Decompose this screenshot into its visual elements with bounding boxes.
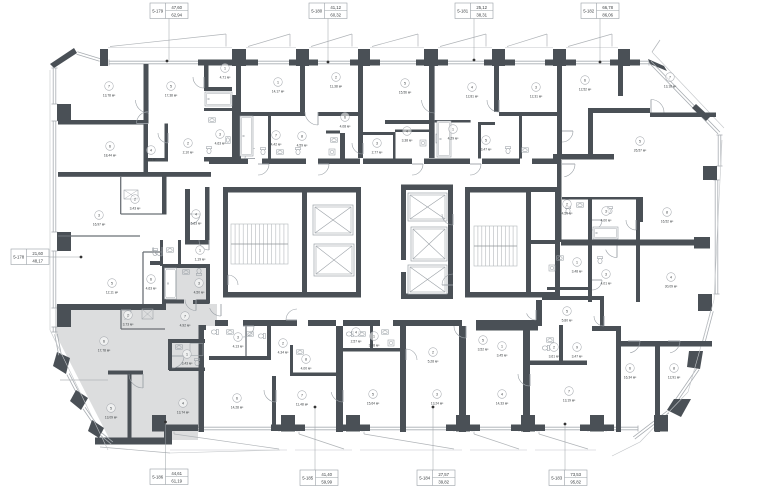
svg-text:5,80 м²: 5,80 м² (562, 319, 574, 323)
svg-text:13,09 м²: 13,09 м² (105, 416, 118, 420)
svg-text:5-183: 5-183 (551, 476, 563, 481)
svg-text:2: 2 (134, 197, 136, 201)
svg-text:4: 4 (406, 129, 408, 133)
svg-text:25,12: 25,12 (476, 5, 487, 10)
svg-text:3,43 м²: 3,43 м² (182, 362, 194, 366)
svg-text:3,43 м²: 3,43 м² (130, 207, 142, 211)
svg-text:14,28 м²: 14,28 м² (231, 406, 244, 410)
svg-text:5-178: 5-178 (13, 255, 25, 260)
svg-text:2,57 м²: 2,57 м² (351, 340, 363, 344)
svg-text:7: 7 (275, 133, 277, 137)
svg-text:11,38 м²: 11,38 м² (330, 85, 343, 89)
svg-text:3: 3 (376, 141, 378, 145)
svg-text:3: 3 (98, 213, 100, 217)
svg-text:7: 7 (108, 84, 110, 88)
svg-text:6: 6 (103, 339, 105, 343)
svg-text:62,94: 62,94 (171, 13, 182, 18)
svg-text:2: 2 (566, 202, 568, 206)
svg-text:7: 7 (184, 314, 186, 318)
svg-text:3,47 м²: 3,47 м² (572, 355, 584, 359)
svg-text:17,38 м²: 17,38 м² (165, 94, 178, 98)
svg-text:5: 5 (482, 338, 484, 342)
svg-text:5-185: 5-185 (302, 476, 314, 481)
svg-text:5-180: 5-180 (311, 9, 323, 14)
svg-text:7: 7 (568, 389, 570, 393)
svg-text:3,38 м²: 3,38 м² (402, 139, 414, 143)
svg-text:1: 1 (452, 127, 454, 131)
svg-text:11,48 м²: 11,48 м² (296, 403, 309, 407)
svg-text:13,18 м²: 13,18 м² (664, 85, 677, 89)
svg-text:6: 6 (236, 396, 238, 400)
svg-text:5: 5 (170, 84, 172, 88)
svg-text:1: 1 (501, 344, 503, 348)
svg-text:13,19 м²: 13,19 м² (563, 399, 576, 403)
svg-text:39,82: 39,82 (438, 480, 449, 485)
svg-text:8: 8 (666, 210, 668, 214)
svg-text:4: 4 (150, 148, 152, 152)
svg-text:5: 5 (372, 392, 374, 396)
svg-text:3,73 м²: 3,73 м² (123, 323, 135, 327)
svg-text:14,33 м²: 14,33 м² (496, 402, 509, 406)
svg-text:1: 1 (199, 248, 201, 252)
svg-text:5-182: 5-182 (583, 9, 595, 14)
svg-text:3,52 м²: 3,52 м² (478, 348, 490, 352)
svg-text:15,56 м²: 15,56 м² (399, 91, 412, 95)
svg-text:5,28 м²: 5,28 м² (428, 360, 440, 364)
svg-text:1: 1 (186, 352, 188, 356)
svg-text:12,52 м²: 12,52 м² (579, 88, 592, 92)
svg-text:2,77 м²: 2,77 м² (372, 151, 384, 155)
svg-text:61,19: 61,19 (171, 479, 182, 484)
svg-text:4: 4 (182, 401, 184, 405)
svg-text:12,81 м²: 12,81 м² (466, 95, 479, 99)
svg-text:86,06: 86,06 (602, 13, 613, 18)
svg-text:12,11 м²: 12,11 м² (106, 291, 119, 295)
svg-text:3: 3 (605, 209, 607, 213)
svg-text:7: 7 (301, 393, 303, 397)
svg-text:15,64 м²: 15,64 м² (367, 402, 380, 406)
svg-text:47,60: 47,60 (171, 5, 182, 10)
svg-text:4: 4 (195, 212, 197, 216)
svg-text:1: 1 (224, 66, 226, 70)
svg-text:5-184: 5-184 (419, 476, 431, 481)
svg-text:16,52 м²: 16,52 м² (661, 220, 674, 224)
svg-text:21,60: 21,60 (32, 251, 43, 256)
svg-text:4: 4 (471, 85, 473, 89)
svg-text:14,17 м²: 14,17 м² (272, 90, 285, 94)
svg-text:5: 5 (485, 138, 487, 142)
svg-text:3: 3 (219, 132, 221, 136)
svg-text:4,13 м²: 4,13 м² (233, 345, 245, 349)
svg-text:4: 4 (355, 330, 357, 334)
svg-text:6: 6 (629, 366, 631, 370)
svg-text:2: 2 (127, 313, 129, 317)
svg-text:26,57 м²: 26,57 м² (634, 149, 647, 153)
svg-text:4,00 м²: 4,00 м² (301, 367, 313, 371)
svg-text:2: 2 (187, 141, 189, 145)
svg-text:1: 1 (277, 80, 279, 84)
svg-text:9: 9 (576, 345, 578, 349)
svg-text:2: 2 (335, 75, 337, 79)
svg-text:3: 3 (605, 272, 607, 276)
svg-text:5: 5 (110, 406, 112, 410)
svg-text:13,74 м²: 13,74 м² (177, 411, 190, 415)
svg-text:8: 8 (305, 357, 307, 361)
svg-text:6: 6 (584, 78, 586, 82)
svg-text:12,31 м²: 12,31 м² (530, 95, 543, 99)
svg-text:8: 8 (673, 366, 675, 370)
svg-text:3: 3 (198, 281, 200, 285)
svg-text:4,71 м²: 4,71 м² (220, 76, 232, 80)
svg-text:4,34 м²: 4,34 м² (278, 351, 290, 355)
svg-text:4,59 м²: 4,59 м² (297, 144, 309, 148)
svg-text:4,42 м²: 4,42 м² (271, 143, 283, 147)
svg-text:3: 3 (237, 335, 239, 339)
svg-text:3,47 м²: 3,47 м² (481, 148, 493, 152)
svg-text:4,50 м²: 4,50 м² (194, 291, 206, 295)
svg-text:5: 5 (404, 81, 406, 85)
svg-text:2,10 м²: 2,10 м² (183, 151, 195, 155)
svg-text:5-179: 5-179 (152, 9, 164, 14)
svg-text:3,61 м²: 3,61 м² (549, 355, 561, 359)
svg-text:4,92 м²: 4,92 м² (180, 324, 192, 328)
svg-text:1: 1 (576, 260, 578, 264)
svg-text:44,61: 44,61 (171, 471, 182, 476)
svg-text:17,78 м²: 17,78 м² (98, 349, 111, 353)
svg-text:6: 6 (344, 115, 346, 119)
svg-text:3,75 м²: 3,75 м² (146, 158, 158, 162)
svg-text:4,01 м²: 4,01 м² (601, 282, 613, 286)
svg-text:66,78: 66,78 (602, 5, 613, 10)
svg-text:2: 2 (282, 341, 284, 345)
svg-text:38,31: 38,31 (476, 13, 487, 18)
svg-text:4,63 м²: 4,63 м² (146, 287, 158, 291)
svg-text:7: 7 (669, 75, 671, 79)
svg-text:27,57: 27,57 (438, 472, 449, 477)
svg-text:59,99: 59,99 (321, 480, 332, 485)
svg-text:60,32: 60,32 (330, 13, 341, 18)
svg-text:4,29 м²: 4,29 м² (448, 137, 460, 141)
svg-text:3: 3 (436, 392, 438, 396)
svg-text:3,48 м²: 3,48 м² (369, 344, 381, 348)
svg-text:13,24 м²: 13,24 м² (431, 402, 444, 406)
svg-text:5: 5 (639, 139, 641, 143)
svg-text:30,09 м²: 30,09 м² (665, 285, 678, 289)
svg-text:1: 1 (373, 334, 375, 338)
svg-text:18,44 м²: 18,44 м² (104, 154, 117, 158)
svg-text:8: 8 (301, 134, 303, 138)
svg-text:5: 5 (566, 309, 568, 313)
svg-text:16,97 м²: 16,97 м² (93, 223, 106, 227)
svg-text:4: 4 (670, 275, 672, 279)
svg-text:2: 2 (432, 350, 434, 354)
svg-text:5,63 м²: 5,63 м² (191, 222, 203, 226)
svg-text:4: 4 (501, 392, 503, 396)
svg-text:4,00 м²: 4,00 м² (601, 219, 613, 223)
svg-text:1,19 м²: 1,19 м² (195, 258, 207, 262)
svg-text:6: 6 (109, 144, 111, 148)
svg-text:3,45 м²: 3,45 м² (497, 354, 509, 358)
svg-text:5: 5 (111, 281, 113, 285)
svg-text:12,91 м²: 12,91 м² (668, 376, 681, 380)
svg-text:41,12: 41,12 (330, 5, 341, 10)
svg-text:4,63 м²: 4,63 м² (215, 142, 227, 146)
svg-text:5-181: 5-181 (457, 9, 469, 14)
svg-text:16,34 м²: 16,34 м² (624, 376, 637, 380)
svg-text:95,82: 95,82 (570, 480, 581, 485)
svg-text:13,78 м²: 13,78 м² (103, 94, 116, 98)
svg-text:41,40: 41,40 (321, 472, 332, 477)
svg-text:48,17: 48,17 (32, 259, 43, 264)
svg-text:2: 2 (553, 345, 555, 349)
svg-text:6: 6 (150, 277, 152, 281)
svg-text:3: 3 (535, 85, 537, 89)
svg-text:73,53: 73,53 (570, 472, 581, 477)
svg-text:4,50 м²: 4,50 м² (562, 212, 574, 216)
svg-text:3,48 м²: 3,48 м² (572, 270, 584, 274)
svg-text:5-186: 5-186 (152, 475, 164, 480)
svg-text:4,08 м²: 4,08 м² (340, 125, 352, 129)
